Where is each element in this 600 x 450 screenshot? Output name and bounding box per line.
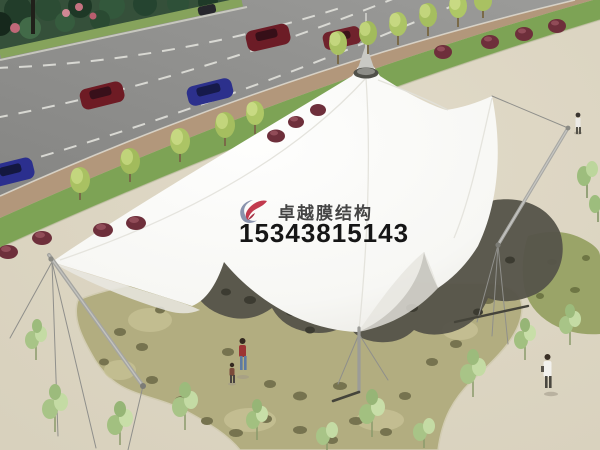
rendering-canvas: 卓越膜结构 15343815143 bbox=[0, 0, 600, 450]
scene-graphic bbox=[0, 0, 600, 450]
